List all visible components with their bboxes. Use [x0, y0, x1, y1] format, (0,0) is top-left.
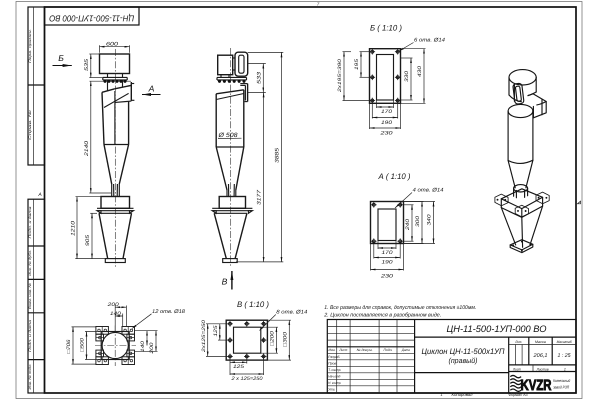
- svg-text:Копировал: Копировал: [452, 392, 473, 397]
- svg-text:1210: 1210: [70, 221, 76, 236]
- svg-text:2 х 125=250: 2 х 125=250: [230, 376, 262, 382]
- svg-text:Б: Б: [58, 53, 64, 63]
- svg-text:3885: 3885: [275, 148, 281, 163]
- svg-text:2х195=390: 2х195=390: [337, 59, 343, 94]
- svg-text:4 отв. Ø14: 4 отв. Ø14: [413, 188, 444, 194]
- svg-text:Нач.отд: Нач.отд: [328, 374, 340, 378]
- svg-text:170: 170: [381, 109, 392, 115]
- svg-text:Масса: Масса: [535, 340, 546, 344]
- svg-text:330: 330: [404, 71, 410, 82]
- svg-text:300: 300: [415, 216, 421, 227]
- svg-text:В ( 1:10 ): В ( 1:10 ): [237, 300, 269, 309]
- svg-text:Пров.: Пров.: [328, 361, 337, 365]
- svg-text:230: 230: [380, 273, 394, 279]
- svg-text:140: 140: [110, 311, 121, 317]
- svg-text:ЦН-11-500-1УП-000 ВО: ЦН-11-500-1УП-000 ВО: [49, 14, 134, 24]
- svg-text:1. Все размеры для справок, до: 1. Все размеры для справок, допустимые о…: [324, 305, 476, 311]
- svg-text:Т. контр.: Т. контр.: [328, 368, 341, 372]
- svg-text:Справ. №: Справ. №: [28, 109, 32, 140]
- svg-text:Изм.: Изм.: [329, 348, 336, 352]
- svg-text:Лит.: Лит.: [514, 340, 522, 344]
- svg-text:Взам. инв. №: Взам. инв. №: [28, 282, 32, 309]
- svg-text:200: 200: [106, 302, 119, 308]
- svg-text:340: 340: [427, 214, 433, 225]
- svg-text:Перв. примен.: Перв. примен.: [28, 29, 32, 63]
- svg-text:завод РЗП: завод РЗП: [552, 384, 569, 389]
- svg-text:(правый): (правый): [449, 356, 479, 365]
- svg-text:Ø 508: Ø 508: [217, 132, 238, 139]
- svg-text:240: 240: [405, 219, 411, 232]
- svg-text:Котельный: Котельный: [553, 378, 571, 383]
- svg-text:Утв.: Утв.: [328, 387, 335, 391]
- svg-text:190: 190: [382, 260, 393, 266]
- svg-text:230: 230: [379, 131, 393, 137]
- svg-text:195: 195: [354, 59, 360, 70]
- svg-text:В: В: [222, 277, 228, 287]
- svg-text:Разраб.: Разраб.: [328, 355, 340, 359]
- svg-text:125: 125: [233, 364, 244, 370]
- svg-text:Подп. и дата: Подп. и дата: [28, 206, 32, 238]
- svg-text:Формат А3: Формат А3: [509, 392, 528, 397]
- svg-text:125: 125: [213, 325, 219, 336]
- svg-text:□200: □200: [270, 331, 276, 346]
- svg-text:Подп. и дата: Подп. и дата: [28, 320, 32, 352]
- svg-text:2140: 2140: [84, 141, 90, 157]
- svg-text:1 : 25: 1 : 25: [558, 353, 572, 359]
- svg-text:Лист: Лист: [338, 348, 347, 352]
- svg-text:12 отв. Ø18: 12 отв. Ø18: [152, 309, 185, 315]
- svg-text:□706: □706: [66, 339, 72, 353]
- svg-text:600: 600: [106, 42, 118, 48]
- svg-text:А: А: [148, 83, 155, 93]
- svg-text:200: 200: [149, 342, 155, 355]
- svg-text:Лист: Лист: [512, 367, 521, 371]
- svg-text:1: 1: [564, 367, 566, 371]
- svg-text:Циклон ЦН-11-500х1УП: Циклон ЦН-11-500х1УП: [422, 347, 505, 356]
- svg-text:2. Циклон поставляется в разоб: 2. Циклон поставляется в разобранном вид…: [323, 313, 441, 319]
- svg-text:535: 535: [84, 59, 90, 71]
- svg-text:6 отв. Ø14: 6 отв. Ø14: [414, 38, 445, 44]
- svg-text:8 отв. Ø14: 8 отв. Ø14: [276, 310, 307, 316]
- svg-text:ЦН-11-500-1УП-000 ВО: ЦН-11-500-1УП-000 ВО: [447, 323, 548, 334]
- svg-text:2х125=250: 2х125=250: [201, 320, 207, 354]
- svg-text:905: 905: [85, 235, 91, 246]
- svg-text:190: 190: [381, 120, 392, 126]
- svg-text:533: 533: [256, 72, 262, 84]
- svg-text:Инв. № дубл.: Инв. № дубл.: [28, 250, 32, 276]
- svg-text:№ докум.: № докум.: [357, 348, 373, 352]
- svg-text:□500: □500: [80, 338, 86, 352]
- svg-text:Масштаб: Масштаб: [557, 340, 573, 344]
- svg-text:А ( 1:10 ): А ( 1:10 ): [378, 172, 411, 181]
- svg-text:140: 140: [140, 341, 146, 352]
- svg-text:Б ( 1:10 ): Б ( 1:10 ): [370, 24, 402, 33]
- svg-text:Инв. № подл.: Инв. № подл.: [28, 363, 32, 389]
- svg-text:206,1: 206,1: [532, 353, 547, 359]
- svg-text:430: 430: [417, 66, 423, 77]
- svg-text:□300: □300: [283, 332, 289, 347]
- svg-text:А: А: [37, 192, 42, 198]
- svg-text:Подп.: Подп.: [384, 348, 393, 352]
- svg-text:3177: 3177: [257, 189, 263, 205]
- svg-text:Листов: Листов: [536, 367, 549, 371]
- svg-text:170: 170: [382, 250, 393, 256]
- svg-text:Дата: Дата: [401, 348, 410, 352]
- svg-text:Н. контр.: Н. контр.: [328, 381, 341, 385]
